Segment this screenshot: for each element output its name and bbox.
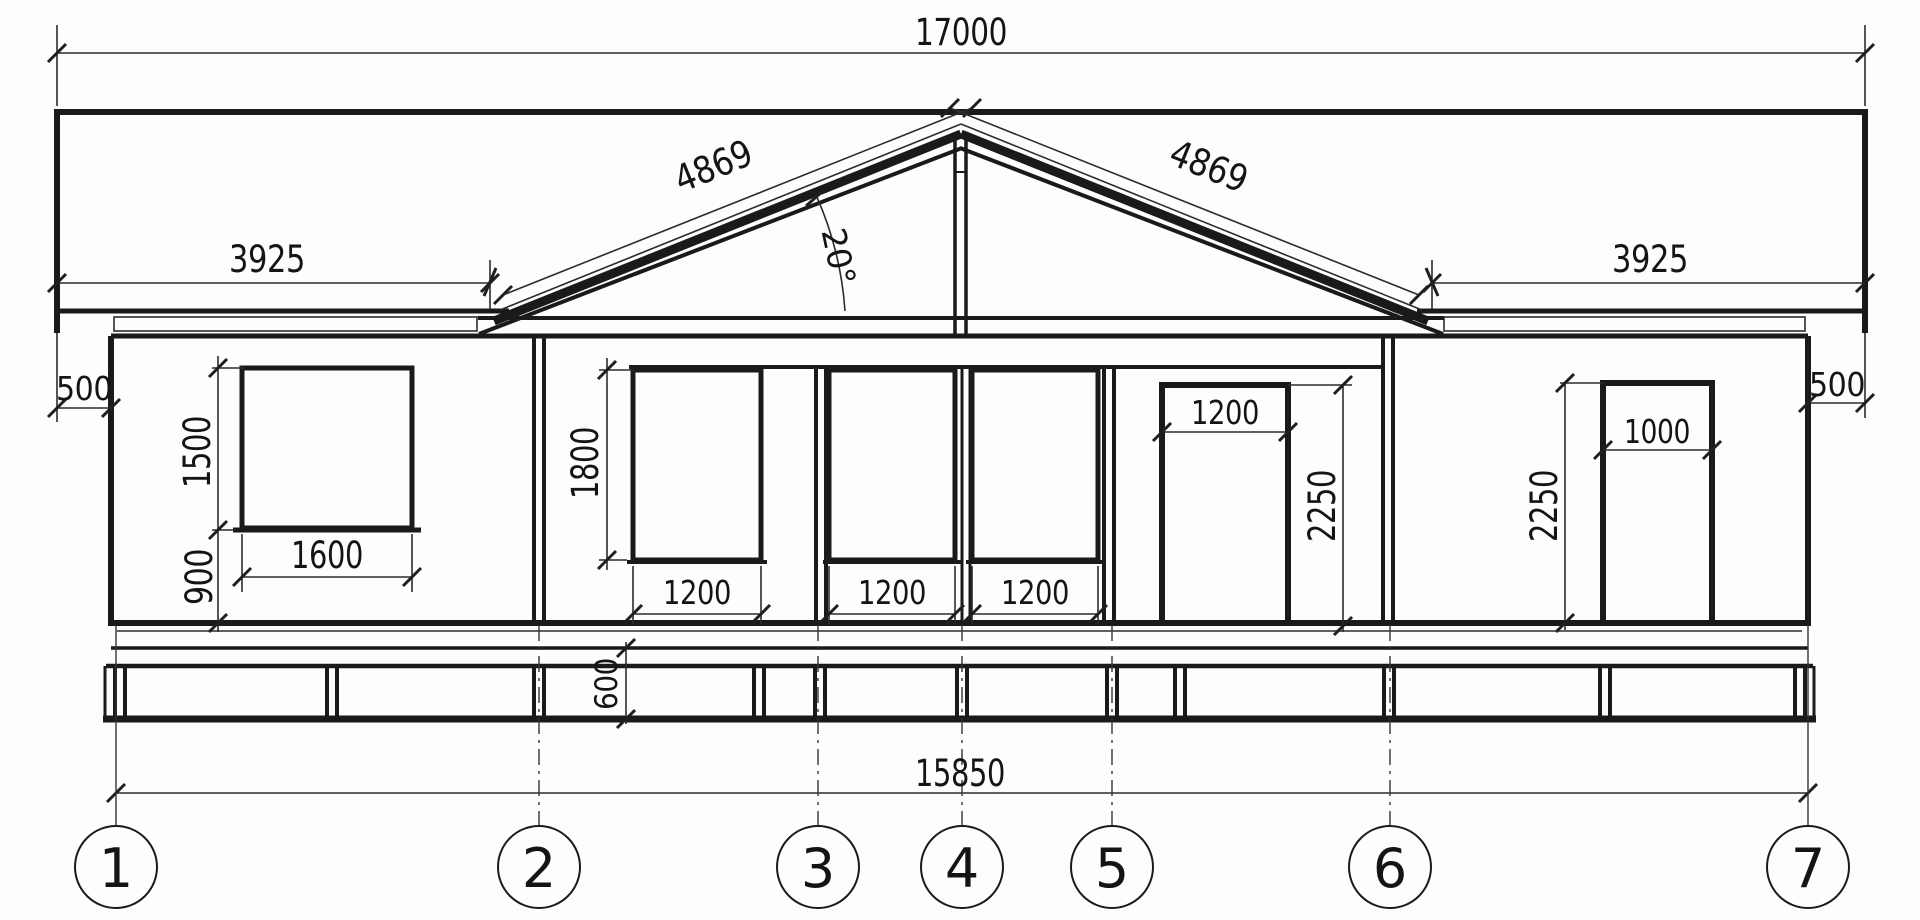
dim-center-window1-width: 1200 xyxy=(663,573,731,612)
axis-label-2: 2 xyxy=(522,837,556,900)
pier-axis-2 xyxy=(534,338,544,621)
axis-labels: 1 2 3 4 5 6 7 xyxy=(99,837,1825,900)
elevation-sheet: 17000 3925 3925 4869 4869 20° 500 500 16… xyxy=(0,0,1920,920)
dim-slope-right: 4869 xyxy=(1164,131,1254,201)
dim-eave-left: 3925 xyxy=(229,238,305,281)
axis-label-6: 6 xyxy=(1373,837,1407,900)
dim-door-b-width: 1000 xyxy=(1624,412,1690,451)
central-window-3 xyxy=(966,370,1104,562)
mullion-axis-3 xyxy=(816,369,826,621)
dim-plinth-height: 600 xyxy=(589,658,625,710)
dim-eave-right: 3925 xyxy=(1612,238,1688,281)
dim-window1-width: 1600 xyxy=(291,534,363,577)
dim-door-a-height: 2250 xyxy=(1301,470,1344,542)
dim-door-b-height: 2250 xyxy=(1523,470,1566,542)
pier-axis-5 xyxy=(1104,369,1114,621)
axis-label-7: 7 xyxy=(1791,837,1825,900)
dim-door-a-width: 1200 xyxy=(1191,393,1259,432)
dim-center-window2-width: 1200 xyxy=(858,573,926,612)
axis-label-3: 3 xyxy=(801,837,835,900)
dim-slope-left: 4869 xyxy=(668,131,758,201)
king-post xyxy=(955,134,966,336)
dim-overhang-right: 500 xyxy=(1809,365,1865,404)
left-window xyxy=(233,368,421,530)
pier-axis-6 xyxy=(1383,338,1393,621)
dim-window1-sill-height: 900 xyxy=(178,549,221,605)
dim-overhang-left: 500 xyxy=(56,369,112,408)
dim-axis-span: 15850 xyxy=(915,752,1005,795)
dim-center-window-height: 1800 xyxy=(564,427,607,499)
mullion-axis-4 xyxy=(962,369,970,621)
dim-total-width: 17000 xyxy=(915,11,1007,54)
axis-label-4: 4 xyxy=(945,837,979,900)
plinth xyxy=(103,623,1816,719)
plinth-piers xyxy=(115,668,1805,717)
roof xyxy=(57,109,1865,333)
elevation-drawing: 17000 3925 3925 4869 4869 20° 500 500 16… xyxy=(0,0,1920,920)
dim-window1-height: 1500 xyxy=(176,416,219,488)
axis-label-1: 1 xyxy=(99,837,133,900)
central-window-2 xyxy=(823,370,961,562)
central-window-1 xyxy=(627,370,767,562)
dim-roof-angle: 20° xyxy=(814,224,864,288)
gable xyxy=(479,124,1443,336)
axis-label-5: 5 xyxy=(1095,837,1129,900)
dim-center-window3-width: 1200 xyxy=(1001,573,1069,612)
